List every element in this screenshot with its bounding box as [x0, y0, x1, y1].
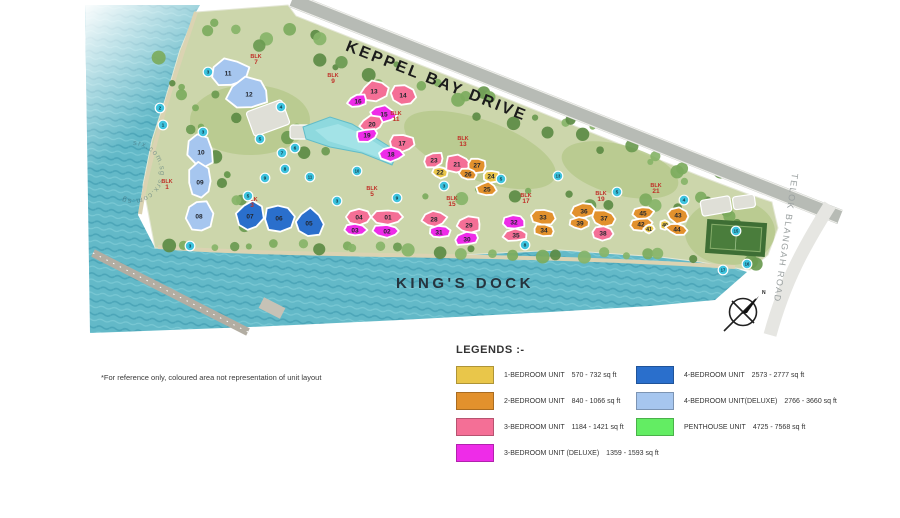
svg-text:13: 13	[556, 173, 561, 178]
unit-number: 21	[453, 161, 461, 168]
svg-text:3: 3	[202, 130, 205, 136]
svg-text:8: 8	[284, 167, 287, 173]
unit-number: 09	[196, 179, 204, 186]
svg-text:15: 15	[734, 228, 739, 233]
amenity-marker-11: 11	[305, 172, 315, 182]
unit-23: 23	[424, 153, 442, 167]
unit-number: 45	[639, 210, 647, 217]
unit-number: 10	[197, 149, 205, 156]
svg-text:7: 7	[281, 151, 284, 157]
amenity-marker-3: 3	[203, 67, 213, 77]
svg-text:9: 9	[264, 176, 267, 182]
unit-08: 08	[186, 201, 214, 230]
amenity-marker-9: 9	[392, 193, 402, 203]
amenity-marker-3: 3	[332, 196, 342, 206]
svg-text:1: 1	[162, 123, 165, 129]
amenity-marker-15: 15	[731, 226, 741, 236]
unit-number: 33	[539, 214, 547, 221]
unit-number: 38	[599, 230, 607, 237]
amenity-marker-3: 3	[198, 127, 208, 137]
unit-number: 28	[430, 216, 438, 223]
svg-text:1: 1	[165, 184, 169, 191]
unit-number: 19	[363, 132, 371, 139]
svg-text:2: 2	[159, 106, 162, 112]
unit-number: 20	[368, 121, 376, 128]
unit-number: 11	[225, 70, 232, 77]
unit-number: 39	[576, 220, 584, 227]
legend-label: 2-BEDROOM UNIT	[504, 398, 565, 405]
unit-number: 13	[370, 88, 378, 95]
legend-item-4br: 4-BEDROOM UNIT2573 - 2777 sq ft	[636, 367, 837, 383]
legend-range: 1359 - 1593 sq ft	[606, 450, 659, 457]
svg-text:3: 3	[189, 244, 192, 250]
unit-number: 29	[465, 222, 473, 229]
legend-range: 570 - 732 sq ft	[572, 372, 617, 379]
unit-number: 08	[195, 213, 203, 220]
amenity-marker-9: 9	[260, 173, 270, 183]
tennis-court	[705, 219, 767, 257]
unit-number: 43	[674, 212, 682, 219]
amenity-marker-3: 3	[185, 241, 195, 251]
unit-number: 15	[380, 111, 388, 118]
svg-text:15: 15	[448, 201, 456, 208]
unit-34: 34	[535, 225, 554, 237]
unit-number: 17	[398, 140, 406, 147]
legend-swatch-4br-deluxe	[636, 392, 674, 410]
unit-number: 36	[580, 208, 588, 215]
amenity-marker-8: 8	[520, 240, 530, 250]
legend-range: 840 - 1066 sq ft	[572, 398, 621, 405]
unit-number: 07	[246, 213, 254, 220]
unit-04: 04	[346, 209, 371, 225]
amenity-marker-5: 5	[255, 134, 265, 144]
legend-label: PENTHOUSE UNIT	[684, 424, 746, 431]
unit-number: 26	[464, 171, 472, 178]
unit-number: 02	[383, 228, 391, 235]
svg-text:6: 6	[294, 146, 297, 152]
svg-text:3: 3	[250, 202, 254, 209]
unit-number: 30	[463, 236, 471, 243]
label-kings-dock: KING'S DOCK	[396, 275, 534, 292]
unit-number: 01	[384, 214, 392, 221]
legend-column-right: 4-BEDROOM UNIT2573 - 2777 sq ft 4-BEDROO…	[636, 367, 837, 445]
svg-text:16: 16	[745, 261, 750, 266]
svg-text:21: 21	[652, 188, 660, 195]
legend-item-penthouse: PENTHOUSE UNIT4725 - 7568 sq ft	[636, 419, 837, 435]
legend-swatch-4br	[636, 366, 674, 384]
unit-number: 37	[600, 215, 608, 222]
legend-item-2br: 2-BEDROOM UNIT840 - 1066 sq ft	[456, 393, 659, 409]
svg-text:13: 13	[459, 141, 467, 148]
unit-number: 22	[436, 169, 444, 176]
unit-01: 01	[371, 211, 403, 225]
svg-text:5: 5	[616, 190, 619, 196]
legend-swatch-3br-deluxe	[456, 444, 494, 462]
legend-item-3br-deluxe: 3-BEDROOM UNIT (DELUXE)1359 - 1593 sq ft	[456, 445, 659, 461]
svg-text:3: 3	[207, 70, 210, 76]
unit-number: 06	[275, 215, 283, 222]
svg-text:5: 5	[247, 194, 250, 200]
amenity-marker-7: 7	[277, 148, 287, 158]
legend-swatch-2br	[456, 392, 494, 410]
legend-swatch-1br	[456, 366, 494, 384]
amenity-marker-5: 5	[612, 187, 622, 197]
svg-text:9: 9	[331, 78, 335, 85]
unit-number: 05	[305, 220, 313, 227]
unit-number: 44	[673, 226, 681, 233]
legend-label: 4-BEDROOM UNIT	[684, 372, 745, 379]
amenity-marker-4: 4	[276, 102, 286, 112]
unit-number: 34	[540, 227, 548, 234]
unit-number: 14	[399, 92, 407, 99]
svg-text:5: 5	[259, 137, 262, 143]
legend-swatch-3br	[456, 418, 494, 436]
svg-text:3: 3	[443, 184, 446, 190]
unit-number: 03	[351, 227, 359, 234]
unit-number: 41	[646, 227, 652, 233]
legend-range: 2573 - 2777 sq ft	[752, 372, 805, 379]
svg-text:11: 11	[308, 174, 313, 179]
unit-number: 32	[510, 219, 518, 226]
svg-text:4: 4	[280, 105, 283, 111]
site-plan-page: srx.com.sg srx.com.sgKEPPEL BAY DRIVEKIN…	[0, 0, 900, 518]
compass-icon: N	[724, 290, 766, 331]
svg-text:7: 7	[254, 59, 258, 66]
unit-number: 31	[435, 229, 443, 236]
unit-number: 27	[473, 162, 481, 169]
legend-column-left: 1-BEDROOM UNIT570 - 732 sq ft 2-BEDROOM …	[456, 367, 659, 471]
svg-text:5: 5	[370, 191, 374, 198]
unit-number: 25	[483, 186, 491, 193]
legend-label: 3-BEDROOM UNIT	[504, 424, 565, 431]
amenity-marker-8: 8	[280, 164, 290, 174]
svg-text:19: 19	[597, 196, 605, 203]
unit-number: 12	[245, 91, 253, 98]
amenity-marker-4: 4	[679, 195, 689, 205]
amenity-marker-5: 5	[496, 174, 506, 184]
amenity-marker-3: 3	[439, 181, 449, 191]
svg-text:10: 10	[355, 168, 360, 173]
amenity-marker-6: 6	[290, 143, 300, 153]
svg-text:17: 17	[721, 267, 726, 272]
amenity-marker-2: 2	[155, 103, 165, 113]
amenity-marker-17: 17	[718, 265, 728, 275]
legend-swatch-penthouse	[636, 418, 674, 436]
legend-item-4br-deluxe: 4-BEDROOM UNIT(DELUXE)2766 - 3660 sq ft	[636, 393, 837, 409]
legend-range: 4725 - 7568 sq ft	[753, 424, 806, 431]
unit-number: 23	[430, 157, 438, 164]
legend-range: 2766 - 3660 sq ft	[784, 398, 837, 405]
legend-title: LEGENDS :-	[456, 344, 525, 356]
unit-number: 04	[355, 214, 363, 221]
unit-26: 26	[459, 169, 477, 180]
unit-number: 16	[354, 98, 362, 105]
legend-item-1br: 1-BEDROOM UNIT570 - 732 sq ft	[456, 367, 659, 383]
legend-label: 4-BEDROOM UNIT(DELUXE)	[684, 398, 777, 405]
unit-38: 38	[592, 226, 613, 241]
amenity-marker-5: 5	[243, 191, 253, 201]
legend-item-3br: 3-BEDROOM UNIT1184 - 1421 sq ft	[456, 419, 659, 435]
unit-09: 09	[189, 162, 210, 198]
legend-label: 3-BEDROOM UNIT (DELUXE)	[504, 450, 599, 457]
unit-32: 32	[503, 215, 525, 229]
compass-north-label: N	[762, 290, 766, 296]
amenity-marker-1: 1	[158, 120, 168, 130]
unit-31: 31	[430, 226, 451, 238]
svg-text:17: 17	[522, 198, 530, 205]
unit-33: 33	[531, 210, 556, 225]
amenity-marker-16: 16	[742, 259, 752, 269]
unit-number: 18	[387, 151, 395, 158]
legend-range: 1184 - 1421 sq ft	[572, 424, 624, 431]
svg-text:11: 11	[393, 116, 400, 123]
svg-text:5: 5	[500, 177, 503, 183]
legend-label: 1-BEDROOM UNIT	[504, 372, 565, 379]
svg-text:4: 4	[683, 198, 686, 204]
svg-text:8: 8	[524, 243, 527, 249]
clubhouse-structure	[732, 194, 756, 210]
unit-number: 24	[487, 173, 495, 180]
footnote: *For reference only, coloured area not r…	[101, 373, 321, 382]
svg-text:3: 3	[336, 199, 339, 205]
svg-text:9: 9	[396, 196, 399, 202]
unit-number: 35	[512, 232, 520, 239]
amenity-marker-13: 13	[553, 171, 563, 181]
amenity-marker-10: 10	[352, 166, 362, 176]
